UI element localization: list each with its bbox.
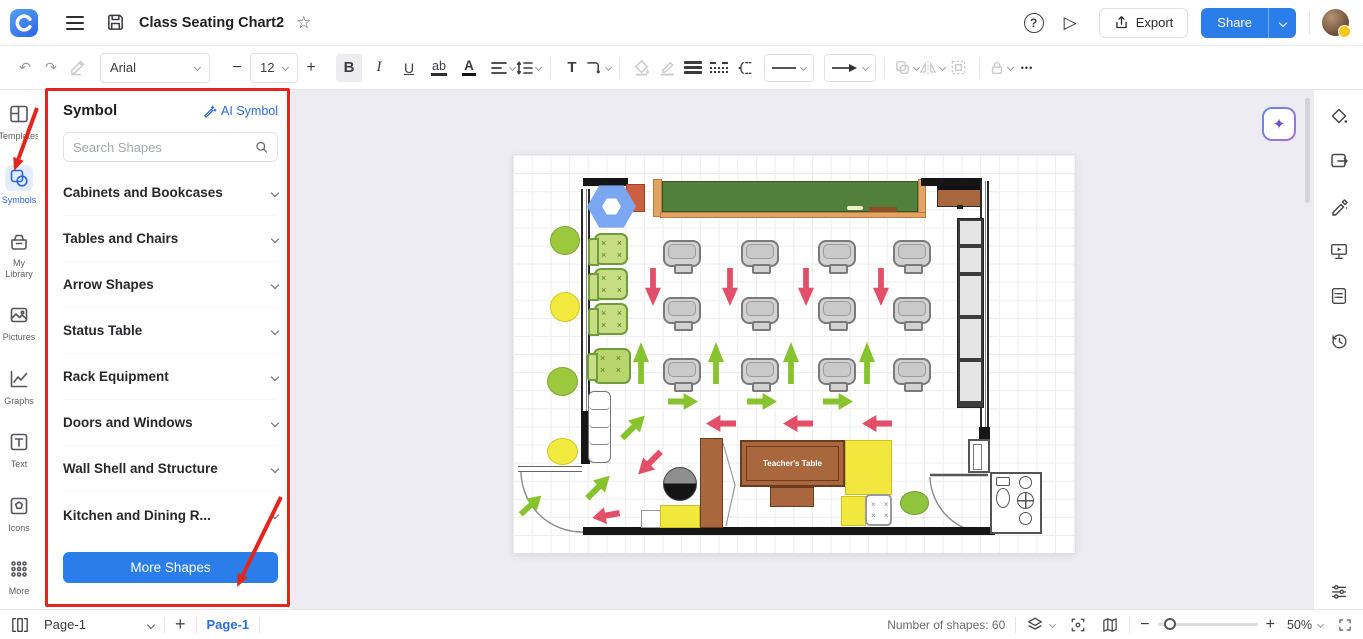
redo-button[interactable]: ↷ <box>38 54 64 82</box>
export-button[interactable]: Export <box>1099 8 1189 38</box>
line-weight-button[interactable] <box>680 54 706 82</box>
category-wall-shell-and-structure[interactable]: Wall Shell and Structure <box>63 446 278 492</box>
share-button[interactable]: Share <box>1201 8 1268 38</box>
hexagon-rug-center <box>602 198 621 215</box>
focus-icon <box>1069 616 1087 634</box>
map-overview-button[interactable] <box>1101 616 1119 634</box>
icons-icon <box>5 493 33 519</box>
status-bar: Page-1 + Page-1 Number of shapes: 60 − +… <box>0 609 1363 639</box>
sink <box>1017 492 1034 509</box>
line-dash-button[interactable] <box>706 54 732 82</box>
yellow-mat[interactable] <box>660 505 700 528</box>
chevron-down-icon <box>271 511 279 519</box>
font-family-select[interactable]: Arial <box>100 53 210 83</box>
cabinet-knob <box>957 205 963 209</box>
symbols-icon <box>5 165 33 191</box>
door-frame[interactable] <box>968 439 990 473</box>
presentation-icon[interactable] <box>1329 241 1349 261</box>
entry-door-leaf[interactable] <box>518 466 582 472</box>
arrow-style-dropdown[interactable] <box>824 54 876 82</box>
sink <box>1019 476 1032 489</box>
zoom-in-button[interactable]: + <box>1266 616 1275 634</box>
cabinet[interactable] <box>937 186 982 207</box>
map-icon <box>1101 616 1119 634</box>
drawing-canvas-area[interactable]: Teacher's Table ✦ <box>291 90 1313 609</box>
layers-button[interactable] <box>1026 616 1055 633</box>
fullscreen-icon <box>1337 617 1353 633</box>
underline-button[interactable]: U <box>396 54 422 82</box>
undo-button[interactable]: ↶ <box>12 54 38 82</box>
student-desk[interactable] <box>893 297 931 324</box>
teacher-table[interactable]: Teacher's Table <box>740 440 845 487</box>
font-size-value: 12 <box>260 60 274 75</box>
group-button[interactable] <box>893 54 919 82</box>
sparkle-icon: ✦ <box>1264 109 1294 139</box>
chevron-down-icon <box>271 326 279 334</box>
student-desk[interactable] <box>893 358 931 385</box>
wall-segment[interactable] <box>583 178 628 186</box>
shape-search-box <box>63 132 278 162</box>
replace-shape-icon[interactable] <box>1329 151 1349 171</box>
search-icon[interactable] <box>255 139 268 155</box>
zoom-out-button[interactable]: − <box>1140 616 1149 634</box>
focus-fit-button[interactable] <box>1069 616 1087 634</box>
chevron-down-icon <box>271 464 279 472</box>
more-shapes-button[interactable]: More Shapes <box>63 552 278 583</box>
font-size-select[interactable]: 12 <box>250 53 298 83</box>
green-armchair[interactable] <box>593 348 631 384</box>
student-desk[interactable] <box>818 297 856 324</box>
history-icon[interactable] <box>1329 331 1349 351</box>
symbol-panel: Symbol AI Symbol Cabinets and Bookcases … <box>38 90 291 609</box>
italic-button[interactable]: I <box>366 54 392 82</box>
sink <box>1019 512 1032 525</box>
student-desk[interactable] <box>741 240 779 267</box>
sidebar-item-more[interactable]: More <box>0 556 38 597</box>
student-desk[interactable] <box>818 358 856 385</box>
chevron-down-icon <box>271 188 279 196</box>
sidebar-item-pictures[interactable]: Pictures <box>0 302 38 343</box>
sidebar-item-my-library[interactable]: My Library <box>0 228 38 279</box>
font-family-value: Arial <box>110 60 136 75</box>
category-kitchen-and-dining[interactable]: Kitchen and Dining R... <box>63 492 278 538</box>
symbol-category-list: Cabinets and Bookcases Tables and Chairs… <box>63 170 278 538</box>
library-icon <box>5 228 33 254</box>
text-align-button[interactable] <box>490 54 516 82</box>
board-eraser[interactable] <box>869 207 897 212</box>
document-title[interactable]: Class Seating Chart2 <box>139 15 284 31</box>
page-layout-toggle-icon[interactable] <box>10 616 30 634</box>
chevron-down-icon <box>271 372 279 380</box>
plant-ellipse[interactable] <box>900 491 929 515</box>
page-tab[interactable]: Page-1 <box>207 617 250 632</box>
bold-button[interactable]: B <box>336 54 362 82</box>
zoom-level-dropdown[interactable]: 50% <box>1287 618 1323 632</box>
green-armchair[interactable] <box>594 233 628 265</box>
graphs-icon <box>5 366 33 392</box>
font-size-increase-button[interactable]: + <box>298 54 324 82</box>
room-divider-panel[interactable] <box>700 438 723 528</box>
bookshelf[interactable] <box>957 218 984 408</box>
left-navigation-rail: Templates Symbols My Library Pictures Gr… <box>0 90 38 609</box>
category-arrow-shapes[interactable]: Arrow Shapes <box>63 262 278 308</box>
insert-text-button[interactable]: T <box>559 54 585 82</box>
student-desk[interactable] <box>741 358 779 385</box>
text-icon <box>5 429 33 455</box>
canvas-scrollbar[interactable] <box>1305 98 1310 203</box>
door-leaf <box>973 444 982 470</box>
sidebar-item-symbols[interactable]: Symbols <box>0 165 38 206</box>
trash-bin[interactable] <box>663 467 697 501</box>
fullscreen-button[interactable] <box>1337 617 1353 633</box>
category-cabinets-and-bookcases[interactable]: Cabinets and Bookcases <box>63 170 278 216</box>
category-rack-equipment[interactable]: Rack Equipment <box>63 354 278 400</box>
connector-style-button[interactable] <box>732 54 758 82</box>
right-toolbar <box>1313 90 1363 609</box>
adjust-panel-icon[interactable] <box>1329 581 1349 601</box>
teacher-table-label: Teacher's Table <box>742 442 843 485</box>
help-icon[interactable]: ? <box>1024 13 1044 33</box>
toilet-bowl <box>996 488 1010 508</box>
student-desk[interactable] <box>663 297 701 324</box>
line-spacing-button[interactable] <box>516 54 542 82</box>
stool-ellipse[interactable] <box>550 292 580 322</box>
drawing-page[interactable]: Teacher's Table <box>513 155 1075 553</box>
page-select-dropdown[interactable]: Page-1 <box>44 617 154 632</box>
sidebar-item-graphs[interactable]: Graphs <box>0 366 38 407</box>
theme-style-icon[interactable] <box>1329 106 1349 126</box>
teacher-podium[interactable] <box>770 487 814 507</box>
add-page-button[interactable]: + <box>175 614 186 635</box>
sidebar-item-icons[interactable]: Icons <box>0 493 38 534</box>
sidebar-item-text[interactable]: Text <box>0 429 38 470</box>
connector-button[interactable] <box>585 54 611 82</box>
line-style-dropdown[interactable] <box>764 54 814 82</box>
chevron-down-icon <box>271 280 279 288</box>
format-toolbar: ↶ ↷ Arial − 12 + B I U ab A T <box>0 46 1363 90</box>
text-highlight-button[interactable]: ab <box>426 54 452 82</box>
chalk-pieces[interactable] <box>847 206 863 210</box>
favorite-star-icon[interactable]: ☆ <box>296 13 311 33</box>
user-avatar[interactable] <box>1322 9 1349 36</box>
main-menu-icon[interactable] <box>66 16 84 30</box>
export-label: Export <box>1136 15 1174 30</box>
sidebar-item-templates[interactable]: Templates <box>0 101 38 142</box>
app-header: Class Seating Chart2 ☆ ? ▷ Export Share <box>0 0 1363 46</box>
zoom-slider[interactable] <box>1158 623 1258 626</box>
save-icon[interactable] <box>106 13 125 32</box>
font-size-decrease-button[interactable]: − <box>224 54 250 82</box>
app-logo-icon[interactable] <box>10 9 38 37</box>
present-icon[interactable]: ▷ <box>1064 13 1077 33</box>
flip-button[interactable] <box>919 54 945 82</box>
lock-button[interactable] <box>988 54 1014 82</box>
yellow-mat[interactable] <box>845 440 892 495</box>
zoom-slider-knob[interactable] <box>1164 618 1176 630</box>
magic-wand-icon <box>203 104 217 118</box>
shape-search-input[interactable] <box>73 140 249 155</box>
green-armchair[interactable] <box>594 303 628 335</box>
student-desk[interactable] <box>741 297 779 324</box>
wall-bottom[interactable] <box>583 527 995 535</box>
notes-icon[interactable] <box>1329 286 1349 306</box>
ai-assistant-button[interactable]: ✦ <box>1262 107 1296 141</box>
ai-symbol-link[interactable]: AI Symbol <box>203 104 278 118</box>
layers-icon <box>1026 616 1044 633</box>
share-button-group: Share <box>1201 8 1296 38</box>
symbol-panel-title: Symbol <box>63 102 117 119</box>
format-brush-icon[interactable] <box>1329 196 1349 216</box>
small-box[interactable] <box>641 510 661 528</box>
pictures-icon <box>5 302 33 328</box>
student-desk[interactable] <box>663 240 701 267</box>
teacher-chair[interactable] <box>865 494 892 526</box>
plant-ellipse[interactable] <box>550 226 580 255</box>
category-tables-and-chairs[interactable]: Tables and Chairs <box>63 216 278 262</box>
student-desk[interactable] <box>893 240 931 267</box>
toilet-tank <box>996 477 1010 486</box>
chevron-down-icon <box>271 418 279 426</box>
student-desk[interactable] <box>663 358 701 385</box>
templates-icon <box>5 101 33 127</box>
yellow-mat[interactable] <box>841 496 866 526</box>
sofa[interactable] <box>588 391 611 463</box>
chalk-tray[interactable] <box>660 212 926 218</box>
green-armchair[interactable] <box>594 268 628 300</box>
wall-segment[interactable] <box>921 178 982 186</box>
format-painter-icon[interactable] <box>64 54 90 82</box>
chevron-down-icon <box>271 234 279 242</box>
font-color-button[interactable]: A <box>456 54 482 82</box>
plant-ellipse[interactable] <box>547 367 578 396</box>
category-doors-and-windows[interactable]: Doors and Windows <box>63 400 278 446</box>
category-status-table[interactable]: Status Table <box>63 308 278 354</box>
more-options-button[interactable]: ••• <box>1014 54 1040 82</box>
more-apps-icon <box>5 556 33 582</box>
fill-color-button[interactable] <box>628 54 654 82</box>
stool-ellipse[interactable] <box>547 438 578 465</box>
shape-count-label: Number of shapes: 60 <box>887 618 1005 632</box>
student-desk[interactable] <box>818 240 856 267</box>
line-color-button[interactable] <box>654 54 680 82</box>
crop-button[interactable] <box>945 54 971 82</box>
share-dropdown-icon[interactable] <box>1268 8 1296 38</box>
